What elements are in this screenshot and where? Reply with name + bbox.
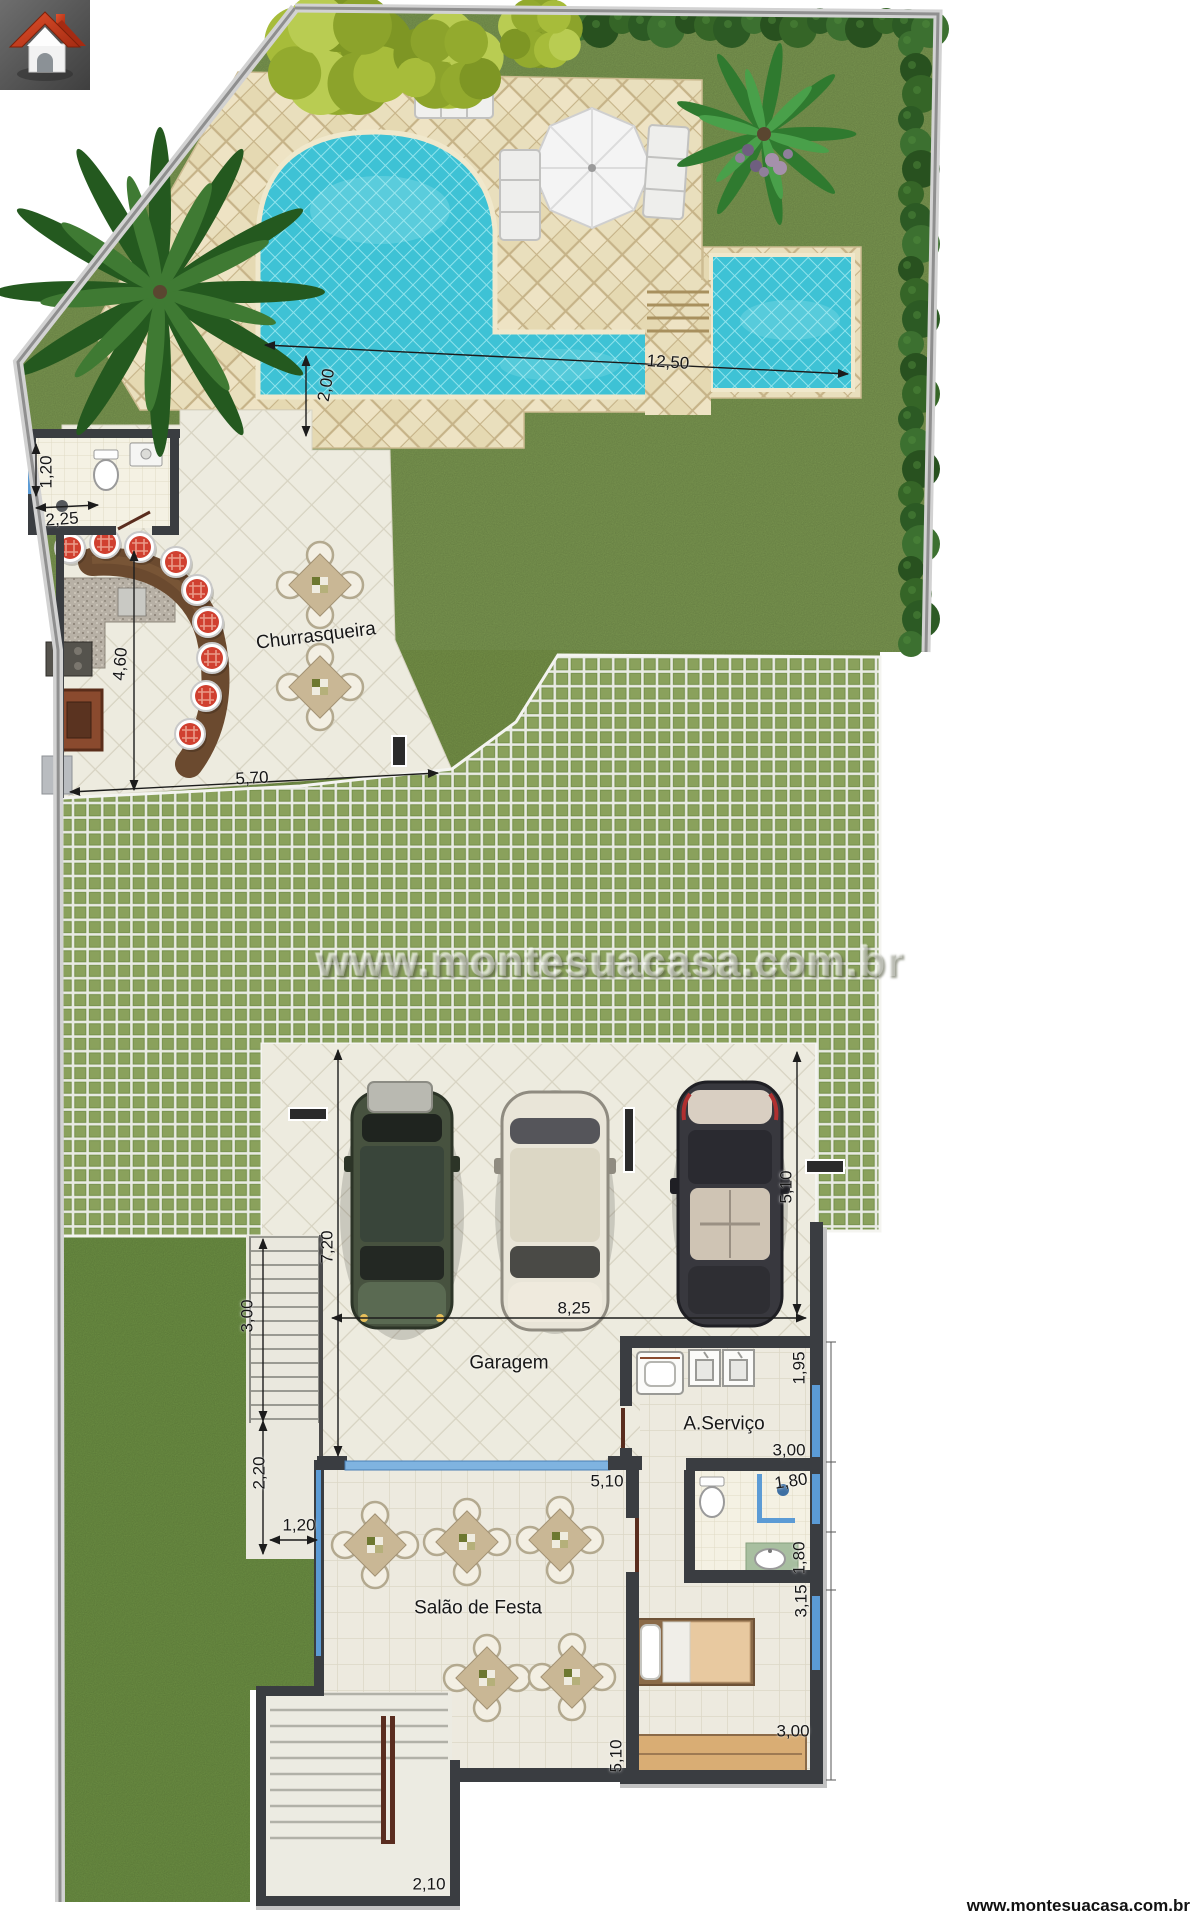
hedge-bush xyxy=(898,31,924,57)
hedge-bush xyxy=(898,106,924,132)
flower-bed xyxy=(773,161,787,175)
closet-icon xyxy=(630,1735,806,1773)
flower-bed xyxy=(742,144,754,156)
dim-bedroom-width: 3,00 xyxy=(776,1723,809,1740)
window-glass xyxy=(812,1596,820,1670)
counter-sink-icon xyxy=(118,588,146,616)
flower-bed xyxy=(735,153,745,163)
flower-bed xyxy=(759,167,769,177)
watermark-center: www.montesuacasa.com.br xyxy=(240,938,980,987)
room-label-garagem: Garagem xyxy=(469,1354,548,1373)
dim-pool-length: 12,50 xyxy=(646,352,690,372)
hedge-bush xyxy=(898,556,924,582)
hedge-bush xyxy=(898,256,924,282)
watermark-footer: www.montesuacasa.com.br xyxy=(967,1896,1190,1916)
dim-garage-width: 8,25 xyxy=(557,1300,590,1317)
window-glass xyxy=(812,1385,820,1457)
dim-garage-right-depth: 5,10 xyxy=(778,1170,795,1203)
stair-rail xyxy=(381,1716,386,1842)
dim-wc-length: 2,25 xyxy=(45,509,79,528)
stair-rail xyxy=(381,1840,395,1844)
hedge-bush xyxy=(898,481,924,507)
entry-porch-floor xyxy=(246,1235,322,1559)
pool-walkway xyxy=(645,280,711,415)
window-glass xyxy=(316,1470,321,1656)
umbrella-icon xyxy=(532,108,652,228)
dim-churrasqueira-depth: 4,60 xyxy=(110,647,130,681)
dim-churrasqueira-width: 5,70 xyxy=(235,769,269,788)
dim-salao-depth: 5,10 xyxy=(608,1739,625,1772)
car-coupe xyxy=(670,1082,790,1327)
hedge-bush xyxy=(898,331,924,357)
dim-porch-width: 1,20 xyxy=(282,1517,315,1534)
dim-suite-strip: 3,15 xyxy=(793,1584,810,1617)
hedge-bush xyxy=(898,406,924,432)
house-logo-icon xyxy=(0,0,90,90)
flower-bed xyxy=(783,149,793,159)
stairwell-floor xyxy=(266,1692,452,1898)
car-sedan xyxy=(494,1090,616,1334)
room-label-servico: A.Serviço xyxy=(683,1415,764,1434)
washing-machine-icon xyxy=(637,1352,683,1394)
hedge-bush xyxy=(898,181,924,207)
dim-garage-depth: 7,20 xyxy=(319,1230,336,1263)
car-suv xyxy=(340,1082,464,1340)
lounge-chair xyxy=(643,125,689,220)
dim-lower-stairs: 2,10 xyxy=(412,1876,445,1893)
dim-porch-depth: 2,20 xyxy=(251,1456,268,1489)
toilet-icon xyxy=(94,450,118,490)
dim-salao-width: 5,10 xyxy=(590,1473,623,1490)
dim-bathroom-width: 1,80 xyxy=(773,1470,808,1491)
montesuacasa-logo xyxy=(0,0,90,90)
bath-toilet-icon xyxy=(700,1477,724,1517)
floor-plan-canvas: 2,00 12,50 1,20 2,25 4,60 5,70 Churrasqu… xyxy=(0,0,1200,1924)
room-label-salao: Salão de Festa xyxy=(414,1599,542,1618)
bed-icon xyxy=(636,1619,754,1685)
dim-bathroom-depth: 1,80 xyxy=(791,1541,808,1574)
dim-entry-stairs: 3,00 xyxy=(239,1299,256,1332)
dim-wc-width: 1,20 xyxy=(38,455,55,488)
window-glass xyxy=(812,1474,820,1524)
dim-servico-depth: 1,95 xyxy=(791,1351,808,1384)
hedge-bush xyxy=(898,631,924,657)
lounge-chair xyxy=(500,150,540,240)
stair-rail xyxy=(390,1716,395,1842)
glass-sliding-door xyxy=(345,1461,610,1470)
dim-servico-width: 3,00 xyxy=(772,1442,805,1459)
